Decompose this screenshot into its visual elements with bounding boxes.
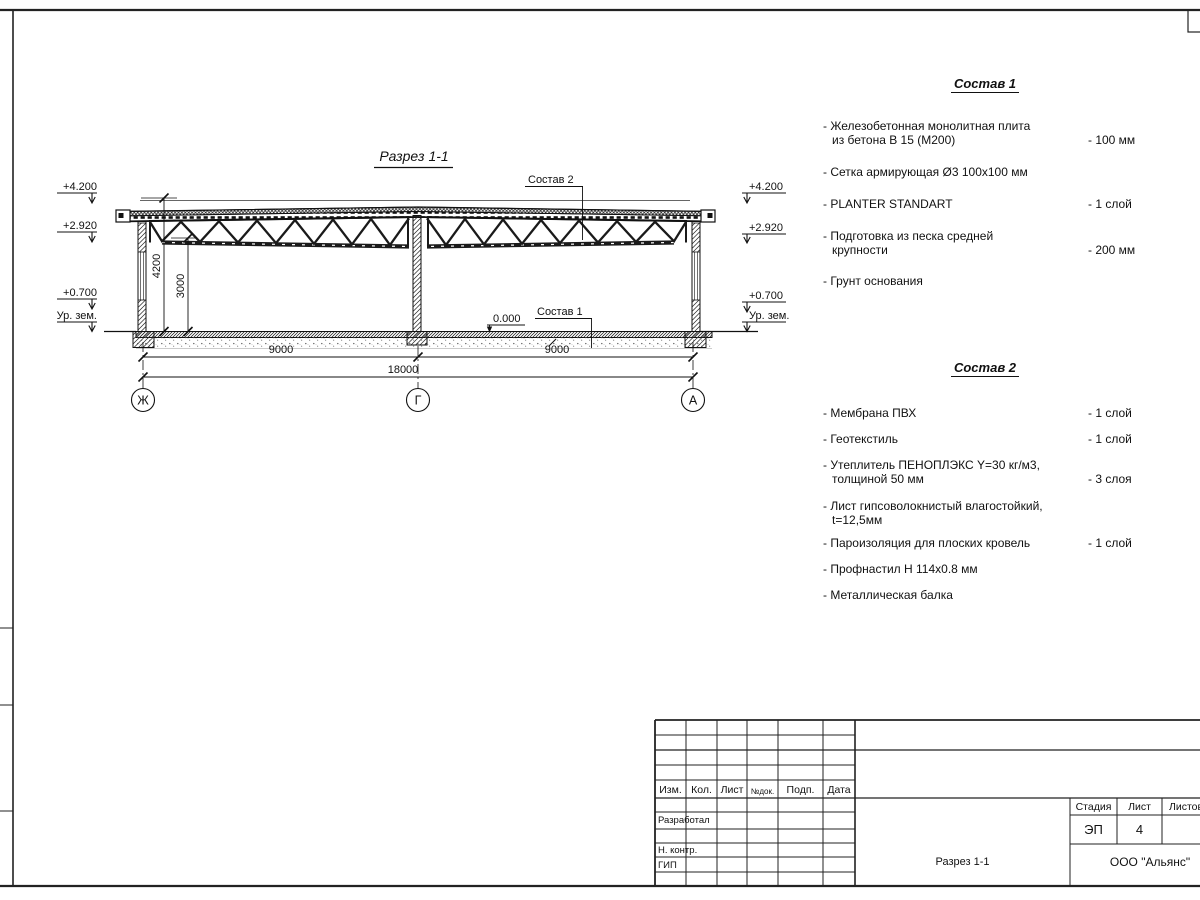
list-item-line: t=12,5мм [823,513,1073,527]
zero-level-mark: 0.000 [487,313,525,333]
tb-col-kol: Кол. [686,782,717,798]
level-label: +0.700 [749,290,783,302]
list-item: - Пароизоляция для плоских кровель [823,536,1073,550]
tb-stage-value: ЭП [1070,815,1117,844]
list-item: - Металлическая балка [823,588,1073,602]
level-label: Ур. зем. [57,310,97,322]
level-label: +4.200 [749,181,783,193]
list-heading-sostav2: Состав 2 [900,360,1070,375]
level-mark: +0.700 [742,290,786,312]
list-item-line: из бетона В 15 (М200) [823,133,1073,147]
axis-letter: Г [415,394,422,408]
level-label: Ур. зем. [749,310,789,322]
tb-role-nkontr: Н. контр. [658,845,697,856]
list-item: - Мембрана ПВХ [823,406,1073,420]
zero-level-text: 0.000 [493,313,521,325]
dim-18000: 18000 [388,364,419,376]
tb-col-list: Лист [717,782,747,798]
drawing-sheet: 9000 9000 18000 4200 3000 Ж Г А +4.200+2… [0,0,1200,900]
list-item-value: - 200 мм [1088,243,1135,257]
tb-col-ndok: №док. [747,786,778,798]
list-item-line: - Утеплитель ПЕНОПЛЭКС Y=30 кг/м3, [823,458,1073,472]
column-center [413,216,421,332]
eave-block-right [701,210,715,222]
tb-col-podp: Подп. [778,782,823,798]
wall-right [692,222,700,332]
level-mark: +4.200 [57,181,97,203]
tb-role-razrabotal: Разработал [658,815,710,826]
list-heading-sostav1: Состав 1 [900,76,1070,91]
level-label: +4.200 [63,181,97,193]
list-item: - PLANTER STANDART [823,197,1073,211]
list-item-line: - Пароизоляция для плоских кровель [823,536,1073,550]
list-item-value: - 1 слой [1088,197,1132,211]
list-heading-sostav1-text: Состав 1 [951,76,1019,93]
list-item-line: - PLANTER STANDART [823,197,1073,211]
level-label: +2.920 [749,222,783,234]
level-label: +2.920 [63,220,97,232]
list-heading-sostav2-text: Состав 2 [951,360,1019,377]
list-item: - Железобетонная монолитная плитаиз бето… [823,119,1073,147]
list-item: - Геотекстиль [823,432,1073,446]
list-item: - Грунт основания [823,274,1073,288]
list-item-value: - 100 мм [1088,133,1135,147]
level-mark: Ур. зем. [57,310,97,332]
level-mark: Ур. зем. [742,310,789,332]
tb-sheet-col: Лист [1117,800,1162,814]
tb-sheet-value: 4 [1117,815,1162,844]
level-marks: +4.200+2.920+0.700Ур. зем.+4.200+2.920+0… [57,181,790,332]
list-item: - Подготовка из песка среднейкрупности [823,229,1073,257]
level-mark: +0.700 [57,287,97,309]
list-item-line: - Мембрана ПВХ [823,406,1073,420]
eave-block-left [116,210,130,222]
level-label: +0.700 [63,287,97,299]
tb-company: ООО "Альянс" [1070,850,1200,874]
level-mark: +4.200 [742,181,786,203]
axis-bubbles: Ж Г А [132,389,705,412]
list-item-line: - Подготовка из песка средней [823,229,1073,243]
wall-left [138,222,146,332]
tb-col-izm: Изм. [655,782,686,798]
callout-sostav1-text: Состав 1 [537,306,583,318]
level-mark: +2.920 [57,220,97,242]
list-item: - Сетка армирующая Ø3 100х100 мм [823,165,1073,179]
list-item-value: - 1 слой [1088,536,1132,550]
dim-9000-left: 9000 [269,344,293,356]
list-item-line: - Металлическая балка [823,588,1073,602]
axis-letter: Ж [137,394,149,408]
dim-9000-right: 9000 [545,344,569,356]
list-item: - Профнастил Н 114х0.8 мм [823,562,1073,576]
callout-sostav2-text: Состав 2 [528,174,574,186]
tb-doc-title: Разрез 1-1 [855,850,1070,874]
dim-3000: 3000 [175,274,187,298]
list-item-value: - 1 слой [1088,406,1132,420]
list-item-line: - Сетка армирующая Ø3 100х100 мм [823,165,1073,179]
list-item: - Лист гипсоволокнистый влагостойкий,t=1… [823,499,1073,527]
level-mark: +2.920 [742,222,786,243]
list-item-line: толщиной 50 мм [823,472,1073,486]
list-item-line: крупности [823,243,1073,257]
tb-stage-col: Стадия [1070,800,1117,814]
section-view [104,201,758,349]
axis-letter: А [689,394,698,408]
tb-role-gip: ГИП [658,860,677,871]
list-item-line: - Грунт основания [823,274,1073,288]
list-item-line: - Лист гипсоволокнистый влагостойкий, [823,499,1073,513]
list-item-line: - Геотекстиль [823,432,1073,446]
dim-4200: 4200 [151,254,163,278]
list-item-value: - 1 слой [1088,432,1132,446]
section-title-text: Разрез 1-1 [379,148,448,164]
tb-col-data: Дата [823,782,855,798]
list-item-value: - 3 слоя [1088,472,1132,486]
list-item-line: - Профнастил Н 114х0.8 мм [823,562,1073,576]
tb-sheets-col: Листов [1162,800,1200,814]
section-title: Разрез 1-1 [374,148,453,168]
list-item-line: - Железобетонная монолитная плита [823,119,1073,133]
list-item: - Утеплитель ПЕНОПЛЭКС Y=30 кг/м3,толщин… [823,458,1073,486]
